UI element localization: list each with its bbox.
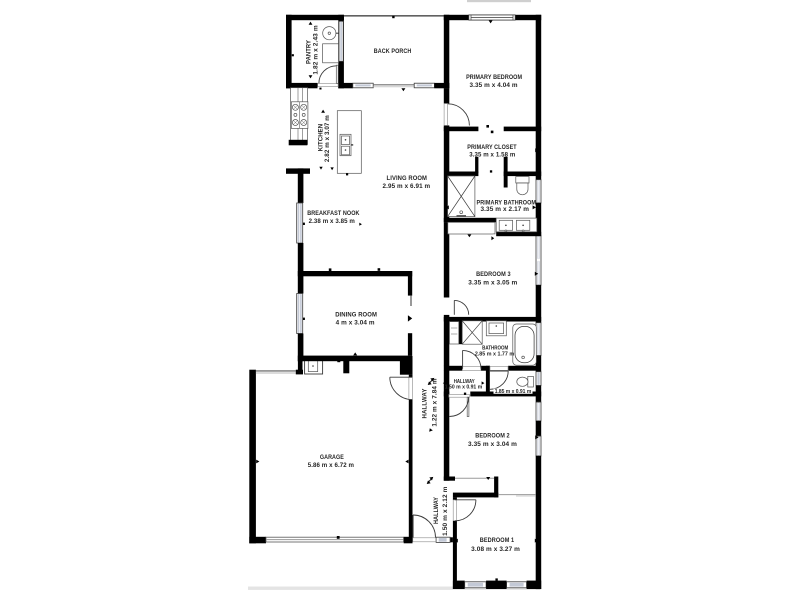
svg-text:2.82 m x 3.07 m: 2.82 m x 3.07 m <box>324 115 331 162</box>
svg-text:3.35 m x 1.58 m: 3.35 m x 1.58 m <box>469 151 515 158</box>
svg-text:2.95 m x 6.91 m: 2.95 m x 6.91 m <box>383 183 431 190</box>
svg-text:5.86 m x 6.72 m: 5.86 m x 6.72 m <box>308 462 355 469</box>
svg-text:3.35 m x 4.04 m: 3.35 m x 4.04 m <box>470 82 519 89</box>
svg-text:PRIMARY BEDROOM: PRIMARY BEDROOM <box>466 74 522 81</box>
svg-text:1.50 m x 2.12 m: 1.50 m x 2.12 m <box>442 486 449 536</box>
svg-text:BEDROOM 1: BEDROOM 1 <box>480 537 515 544</box>
svg-text:1.85 m x 0.91 m: 1.85 m x 0.91 m <box>495 389 532 395</box>
svg-text:4 m x 3.04 m: 4 m x 3.04 m <box>336 319 375 326</box>
svg-text:2.38 m x 3.85 m: 2.38 m x 3.85 m <box>309 218 356 225</box>
svg-text:HALLWAY: HALLWAY <box>422 388 429 418</box>
svg-text:3.35 m x 3.05 m: 3.35 m x 3.05 m <box>468 280 517 287</box>
svg-text:DINING ROOM: DINING ROOM <box>335 312 377 319</box>
svg-text:3.35 m x 3.04 m: 3.35 m x 3.04 m <box>468 441 517 448</box>
svg-text:BEDROOM 3: BEDROOM 3 <box>476 271 511 278</box>
svg-text:2.85 m x 1.77 m: 2.85 m x 1.77 m <box>475 351 515 357</box>
svg-text:BACK PORCH: BACK PORCH <box>374 48 412 55</box>
svg-text:1.82 m x 2.43 m: 1.82 m x 2.43 m <box>312 25 319 75</box>
svg-text:1.22 m x 7.84 m: 1.22 m x 7.84 m <box>431 378 438 427</box>
svg-text:3.35 m x 2.17 m: 3.35 m x 2.17 m <box>481 206 530 213</box>
svg-text:LIVING ROOM: LIVING ROOM <box>387 175 428 182</box>
svg-text:HALLWAY: HALLWAY <box>433 497 440 524</box>
svg-text:BEDROOM 2: BEDROOM 2 <box>475 433 510 440</box>
svg-text:PRIMARY CLOSET: PRIMARY CLOSET <box>467 144 516 151</box>
svg-text:3.08 m x 3.27 m: 3.08 m x 3.27 m <box>471 546 520 553</box>
svg-text:GARAGE: GARAGE <box>320 454 344 461</box>
svg-text:1.50 m x 0.91 m: 1.50 m x 0.91 m <box>445 384 483 390</box>
svg-text:BREAKFAST NOOK: BREAKFAST NOOK <box>307 210 359 217</box>
